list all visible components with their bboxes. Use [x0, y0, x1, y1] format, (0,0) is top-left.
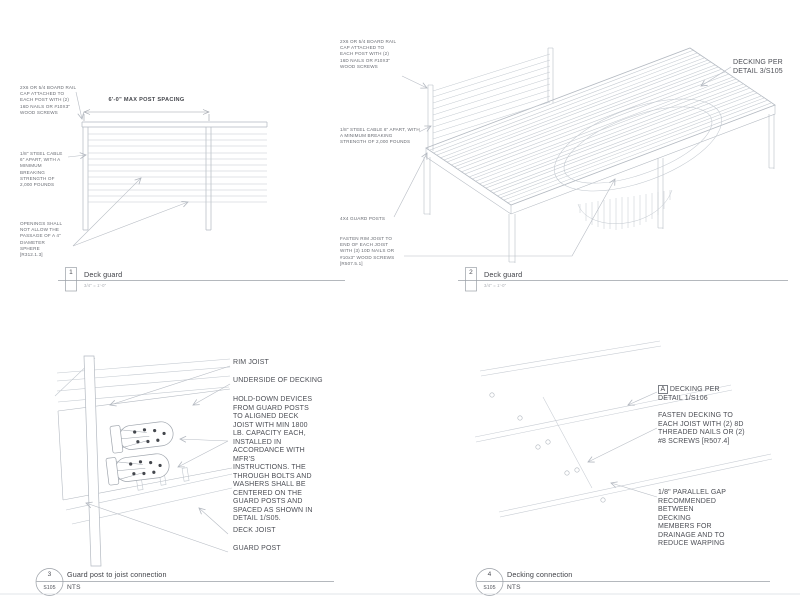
- label-deck-joist: DECK JOIST: [233, 527, 328, 536]
- note-fasten-decking: FASTEN DECKING TO EACH JOIST WITH (2) 8D…: [658, 412, 748, 446]
- detail-title: Deck guard: [84, 270, 122, 279]
- note-steel-cable: 1/8" STEEL CABLE 6" APART, WITH A MINIMU…: [20, 151, 66, 188]
- screw-heads: [490, 393, 605, 502]
- note-rim-joist-fastening: FASTEN RIM JOIST TO END OF EACH JOIST WI…: [340, 236, 395, 267]
- detail-3-drawing: [55, 356, 232, 566]
- detail-1-leaders: [68, 92, 188, 246]
- detail-2-drawing: [394, 48, 775, 263]
- hold-down-device: [106, 451, 171, 485]
- detail-scale: NTS: [67, 584, 81, 591]
- note-guard-posts: 4X4 GUARD POSTS: [340, 216, 430, 222]
- hold-down-device: [110, 419, 175, 453]
- dimension-line: [84, 110, 209, 122]
- detail-2-leaders: [394, 67, 731, 256]
- keynote-marker: A: [658, 385, 668, 394]
- detail-1-drawing: [68, 92, 267, 246]
- detail-title: Deck guard: [484, 270, 522, 279]
- note-decking-per-detail: ADECKING PER DETAIL 1/S106: [658, 385, 742, 403]
- detail-scale: NTS: [507, 584, 521, 591]
- note-rail-cap: 2X6 OR 5/4 BOARD RAIL CAP ATTACHED TO EA…: [20, 85, 78, 116]
- note-hold-down-devices: HOLD-DOWN DEVICES FROM GUARD POSTS TO AL…: [233, 396, 313, 524]
- detail-number-bubble: 3: [36, 571, 63, 578]
- dimension-label: 6'-0" MAX POST SPACING: [84, 97, 209, 103]
- label-rim-joist: RIM JOIST: [233, 359, 328, 368]
- detail-number-bubble: 2: [466, 269, 477, 276]
- label-guard-post: GUARD POST: [233, 545, 328, 554]
- note-rail-cap: 2X6 OR 5/4 BOARD RAIL CAP ATTACHED TO EA…: [340, 39, 398, 70]
- note-steel-cable: 1/8" STEEL CABLE 6" APART, WITH A MINIMU…: [340, 127, 420, 146]
- detail-4-leaders: [588, 392, 657, 497]
- note-parallel-gap: 1/8" PARALLEL GAP RECOMMENDED BETWEEN DE…: [658, 489, 726, 549]
- label-underside-of-decking: UNDERSIDE OF DECKING: [233, 377, 328, 386]
- detail-scale: 3/4" = 1'-0": [84, 283, 106, 288]
- sheet-number: S105: [476, 585, 503, 591]
- sheet-number: S105: [36, 585, 63, 591]
- detail-title: Guard post to joist connection: [67, 570, 167, 579]
- drawing-sheet: 2X6 OR 5/4 BOARD RAIL CAP ATTACHED TO EA…: [0, 0, 800, 600]
- detail-title: Decking connection: [507, 570, 572, 579]
- detail-number-bubble: 4: [476, 571, 503, 578]
- detail-scale: 3/4" = 1'-0": [484, 283, 506, 288]
- note-openings: OPENINGS SHALL NOT ALLOW THE PASSAGE OF …: [20, 221, 62, 258]
- detail-number-bubble: 1: [66, 269, 77, 276]
- note-decking-per-detail: DECKING PER DETAIL 3/S105: [733, 59, 795, 76]
